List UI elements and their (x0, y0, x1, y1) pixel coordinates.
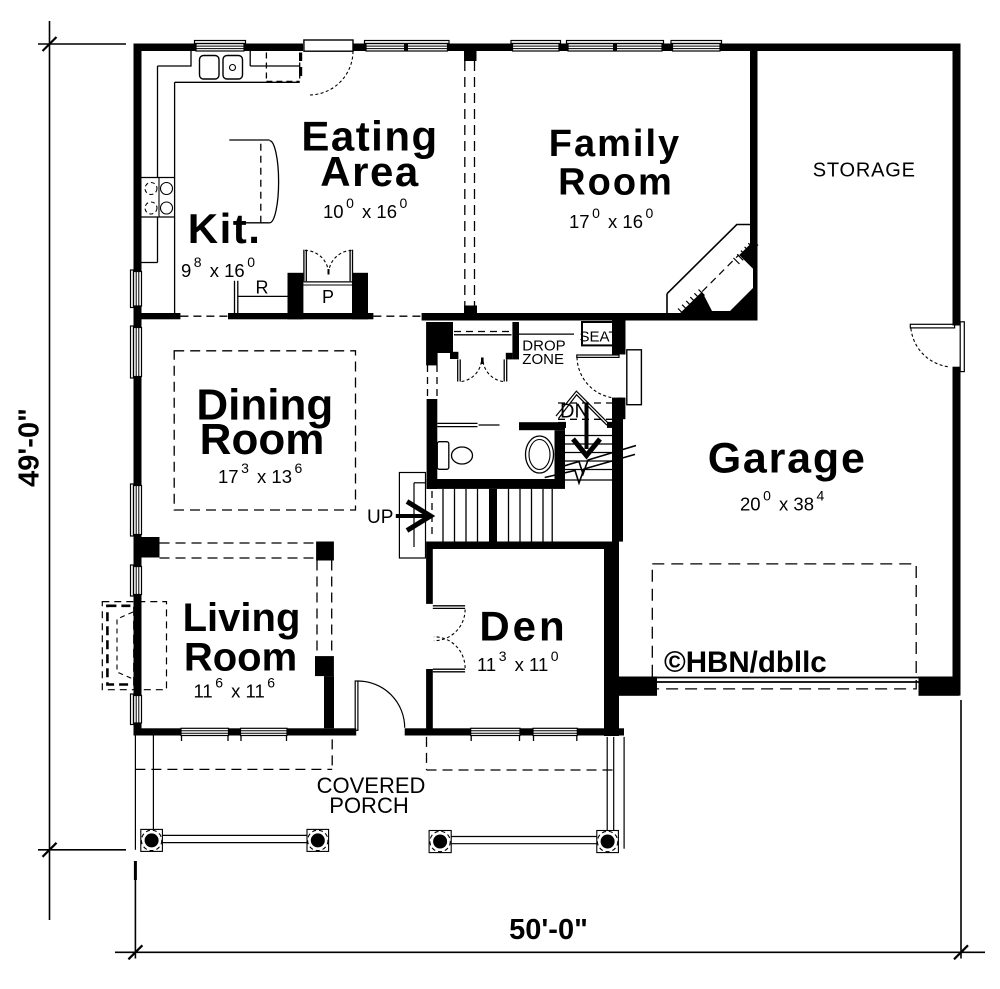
svg-text:Family: Family (549, 123, 681, 165)
svg-text:Room: Room (200, 415, 325, 464)
svg-text:Room: Room (184, 635, 297, 679)
svg-text:Kit.: Kit. (188, 205, 262, 252)
svg-text:49'-0": 49'-0" (14, 408, 46, 487)
svg-text:SEAT: SEAT (580, 329, 618, 346)
svg-text:P: P (322, 287, 334, 307)
svg-text:DN: DN (560, 401, 589, 423)
svg-text:Living: Living (183, 596, 301, 640)
svg-text:UP: UP (367, 507, 393, 528)
svg-text:50'-0": 50'-0" (509, 914, 588, 946)
svg-text:Room: Room (558, 161, 674, 203)
svg-text:©HBN/dbllc: ©HBN/dbllc (664, 646, 827, 679)
svg-text:ZONE: ZONE (522, 351, 564, 368)
svg-text:STORAGE: STORAGE (813, 160, 916, 182)
svg-text:Garage: Garage (708, 435, 867, 483)
svg-text:Area: Area (320, 148, 419, 195)
svg-text:R: R (256, 278, 269, 298)
svg-text:Den: Den (479, 603, 567, 650)
svg-text:PORCH: PORCH (329, 793, 408, 818)
